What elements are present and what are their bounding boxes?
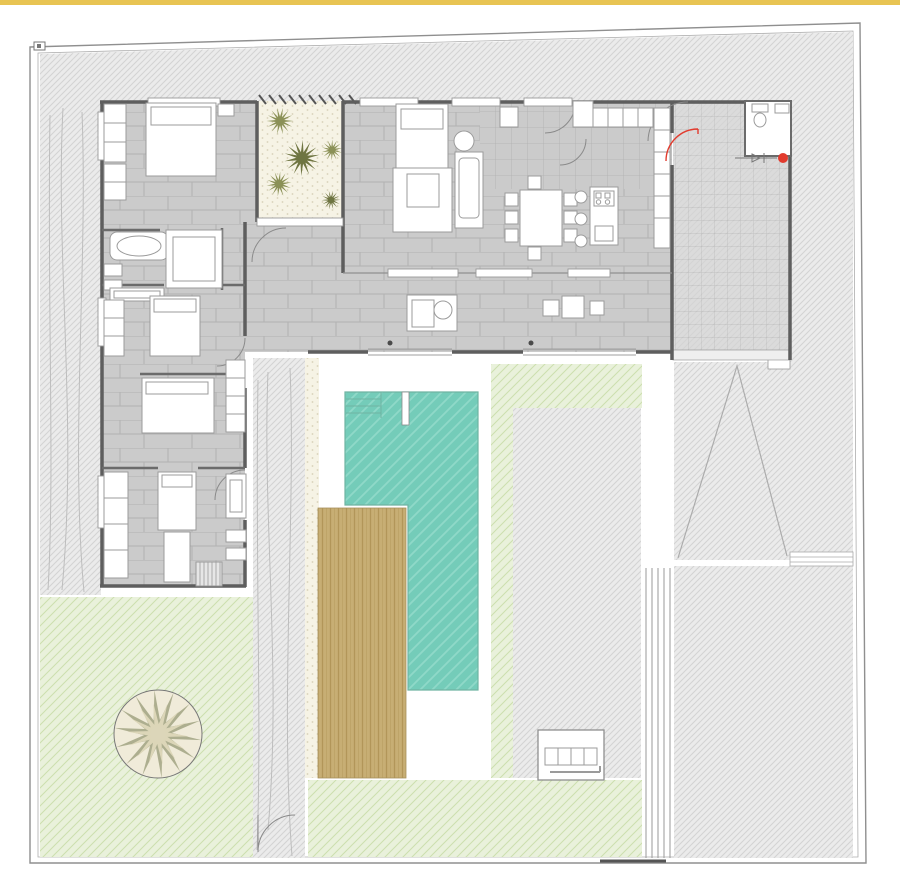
bed-2 [150, 296, 200, 356]
closet-3 [226, 360, 245, 432]
closet-1 [104, 104, 126, 200]
floor-plan-svg [0, 0, 900, 883]
toilet-tank [752, 104, 768, 112]
side-table [590, 301, 604, 315]
closet-2 [104, 300, 124, 356]
vanity [104, 264, 122, 276]
middle-path [253, 358, 305, 858]
terrace-seating [407, 295, 457, 331]
tall-cabinet-column [654, 108, 670, 248]
bathtub [110, 232, 168, 260]
lawn-main [40, 597, 253, 857]
top-accent-bar [0, 0, 900, 5]
wood-deck [318, 508, 406, 778]
kitchen-cabinet [500, 107, 518, 127]
entry-court-threshold [673, 350, 790, 360]
fridge [573, 101, 593, 127]
right-boundary-band [790, 552, 853, 566]
rear-court [674, 566, 853, 858]
entry-red-dot [778, 153, 788, 163]
wardrobe [166, 230, 222, 288]
deck-gravel-strip [305, 358, 319, 778]
side-table [562, 296, 584, 318]
lawn-strip-top [491, 364, 642, 408]
wc-room [745, 101, 791, 156]
stairs [196, 562, 222, 586]
lawn-strip-bottom [308, 780, 642, 857]
outdoor-kitchen [538, 730, 604, 780]
bed-1 [146, 103, 216, 176]
kitchen-island [590, 187, 618, 245]
floor-drain [529, 341, 534, 346]
bed-4 [158, 472, 196, 582]
side-table [543, 300, 559, 316]
bed-3 [142, 378, 214, 433]
shelf [226, 548, 246, 560]
closet-4 [104, 472, 128, 578]
driveway-ramp [674, 362, 790, 560]
sofa-l [393, 168, 452, 232]
chaise [455, 152, 483, 228]
gray-patio [513, 408, 641, 778]
floor-drain [388, 341, 393, 346]
round-side-table [454, 131, 474, 151]
sofa-daybed [396, 104, 448, 168]
lawn-strip-side [491, 364, 513, 778]
pool-courtyard [305, 358, 642, 857]
toilet-bowl [754, 113, 766, 127]
nightstand [218, 104, 234, 116]
terrain-right-strip [790, 101, 853, 555]
wc-sink [775, 104, 789, 113]
dining-table [520, 190, 562, 246]
pool-ledge [402, 392, 409, 425]
floor-plan-canvas [0, 0, 900, 883]
bar-stools [575, 191, 587, 247]
shelf [226, 530, 246, 542]
desk [226, 474, 246, 518]
